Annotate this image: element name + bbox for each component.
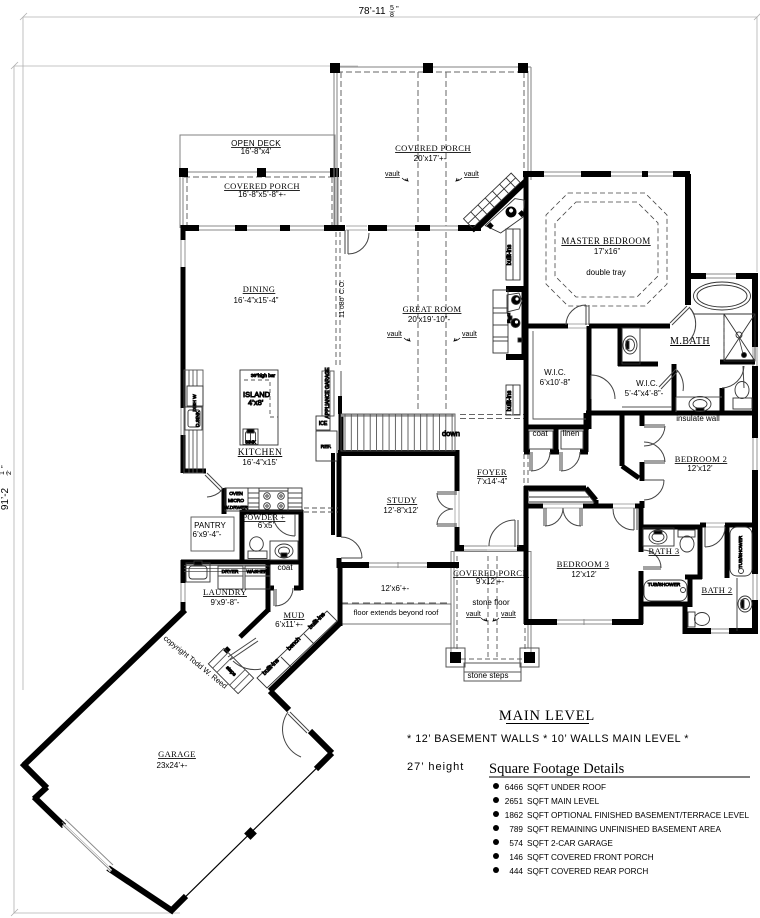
svg-text:2651: 2651 [505, 797, 524, 806]
svg-text:16’-4”x15’-4”: 16’-4”x15’-4” [234, 296, 279, 305]
svg-text:D.SINK: D.SINK [195, 410, 201, 427]
svg-text:floor extends beyond roof: floor extends beyond roof [354, 608, 440, 617]
svg-text:23x24’+-: 23x24’+- [157, 761, 188, 770]
svg-text:built-ins: built-ins [507, 391, 513, 412]
svg-text:27’ height: 27’ height [407, 761, 464, 773]
svg-text:SQFT COVERED REAR PORCH: SQFT COVERED REAR PORCH [527, 867, 648, 876]
svg-text:W.I.C.: W.I.C. [544, 368, 566, 377]
svg-text:SQFT MAIN LEVEL: SQFT MAIN LEVEL [527, 797, 600, 806]
svg-text:SQFT REMAINING UNFINISHED BASE: SQFT REMAINING UNFINISHED BASEMENT AREA [527, 825, 721, 834]
svg-text:8: 8 [390, 12, 394, 19]
svg-text:5: 5 [390, 5, 394, 12]
svg-text:APPLIANCE GARAGE: APPLIANCE GARAGE [325, 367, 331, 419]
svg-text:W.I.C.: W.I.C. [636, 379, 658, 388]
svg-text:EL 42: EL 42 [506, 312, 511, 323]
svg-text:insulate wall: insulate wall [676, 414, 720, 423]
svg-text:146: 146 [509, 853, 523, 862]
svg-text:down: down [442, 429, 460, 438]
svg-text:12’x6’+-: 12’x6’+- [381, 584, 410, 593]
svg-text:SQFT OPTIONAL FINISHED BASEMEN: SQFT OPTIONAL FINISHED BASEMENT/TERRACE … [527, 811, 749, 820]
svg-text:GREAT ROOM: GREAT ROOM [403, 304, 462, 314]
svg-text:vault: vault [464, 171, 479, 178]
svg-text:coat: coat [532, 429, 548, 438]
svg-text:LAUNDRY: LAUNDRY [203, 587, 247, 597]
svg-text:M.BATH: M.BATH [670, 336, 710, 347]
svg-text:PANTRY: PANTRY [194, 521, 226, 530]
svg-text:12’-8”x12’: 12’-8”x12’ [383, 506, 418, 515]
svg-text:6466: 6466 [505, 783, 524, 792]
svg-text:20’x19’-10”-: 20’x19’-10”- [408, 315, 451, 324]
svg-text:vault: vault [385, 171, 400, 178]
svg-text:stone steps: stone steps [468, 671, 509, 680]
svg-text:double tray: double tray [586, 268, 626, 277]
svg-text:16’-8”x5’-8”+-: 16’-8”x5’-8”+- [238, 190, 286, 199]
svg-text:9’x12’+-: 9’x12’+- [476, 577, 505, 586]
svg-text:91’-2: 91’-2 [0, 487, 11, 510]
svg-text:4’x8’: 4’x8’ [248, 398, 264, 407]
svg-text:WASHER: WASHER [247, 569, 268, 575]
svg-text:17’x16”: 17’x16” [594, 247, 621, 256]
svg-text:coat: coat [277, 563, 293, 572]
svg-text:BEDROOM 2: BEDROOM 2 [675, 454, 727, 464]
svg-text:6’x10’-8”: 6’x10’-8” [540, 378, 571, 387]
svg-text:SQFT 2-CAR GARAGE: SQFT 2-CAR GARAGE [527, 839, 613, 848]
svg-text:stone floor: stone floor [472, 598, 510, 607]
svg-text:16’-4”x15’: 16’-4”x15’ [242, 458, 277, 467]
svg-text:20’x17’+-: 20’x17’+- [414, 154, 447, 163]
svg-text:TUB/SHOWER: TUB/SHOWER [648, 582, 681, 588]
svg-text:444: 444 [509, 867, 523, 876]
svg-text:DISH W: DISH W [192, 394, 198, 412]
svg-text:9’x9’-8”-: 9’x9’-8”- [211, 598, 240, 607]
svg-text:2: 2 [6, 471, 13, 475]
svg-text:36”high bar: 36”high bar [251, 373, 276, 379]
svg-text:5’-4”x4’-8”-: 5’-4”x4’-8”- [625, 389, 664, 398]
svg-text:vault: vault [501, 611, 516, 618]
svg-text:BATH 2: BATH 2 [702, 585, 733, 595]
svg-text:OVEN: OVEN [229, 491, 243, 497]
svg-text:7’x14’-4”: 7’x14’-4” [477, 477, 508, 486]
svg-text:W.DRWER: W.DRWER [224, 505, 248, 511]
svg-text:1862: 1862 [505, 811, 524, 820]
svg-text:6’x11’+-: 6’x11’+- [275, 620, 303, 629]
svg-text:STUDY: STUDY [387, 495, 417, 505]
svg-text:GARAGE: GARAGE [158, 749, 196, 759]
svg-text:* 12’ BASEMENT WALLS * 10’ WAL: * 12’ BASEMENT WALLS * 10’ WALLS MAIN LE… [407, 733, 689, 745]
svg-text:574: 574 [509, 839, 523, 848]
svg-text:SQFT COVERED FRONT PORCH: SQFT COVERED FRONT PORCH [527, 853, 654, 862]
svg-text:789: 789 [509, 825, 523, 834]
svg-text:ICE: ICE [319, 421, 328, 427]
svg-text:Square Footage Details: Square Footage Details [489, 761, 625, 777]
svg-text:DRYER: DRYER [222, 569, 239, 575]
svg-text:COVERED PORCH: COVERED PORCH [395, 143, 471, 153]
svg-text:12’x12’: 12’x12’ [687, 464, 713, 473]
svg-text:78’-11: 78’-11 [358, 6, 385, 17]
svg-text:MAIN LEVEL: MAIN LEVEL [499, 708, 595, 724]
svg-text:DINING: DINING [243, 284, 276, 294]
svg-text:16’-8”x4’: 16’-8”x4’ [241, 147, 272, 156]
svg-text:SQFT UNDER ROOF: SQFT UNDER ROOF [527, 783, 606, 792]
svg-text:6’x9’-4”-: 6’x9’-4”- [193, 530, 222, 539]
svg-text:vault: vault [466, 611, 481, 618]
svg-text:12’x12’: 12’x12’ [571, 570, 597, 579]
svg-text:6’x5’: 6’x5’ [258, 521, 275, 530]
svg-text:”: ” [0, 465, 9, 468]
svg-text:FOYER: FOYER [477, 467, 507, 477]
svg-text:BATH 3: BATH 3 [649, 546, 680, 556]
svg-text:TUB/SHOWER: TUB/SHOWER [738, 535, 744, 568]
svg-text:MASTER BEDROOM: MASTER BEDROOM [561, 236, 650, 246]
svg-text:”: ” [396, 5, 399, 14]
svg-text:MUD: MUD [283, 610, 304, 620]
svg-text:11’o8o’ C.O.: 11’o8o’ C.O. [339, 280, 346, 318]
svg-text:SINK: SINK [245, 440, 256, 445]
svg-text:vault: vault [387, 331, 402, 338]
svg-text:BEDROOM 3: BEDROOM 3 [557, 559, 609, 569]
svg-text:vault: vault [462, 331, 477, 338]
svg-text:KITCHEN: KITCHEN [238, 448, 283, 458]
svg-text:built-ins: built-ins [507, 245, 513, 266]
svg-text:REF.: REF. [321, 444, 331, 450]
svg-text:MICRO: MICRO [228, 498, 244, 504]
svg-text:linen: linen [563, 429, 580, 438]
